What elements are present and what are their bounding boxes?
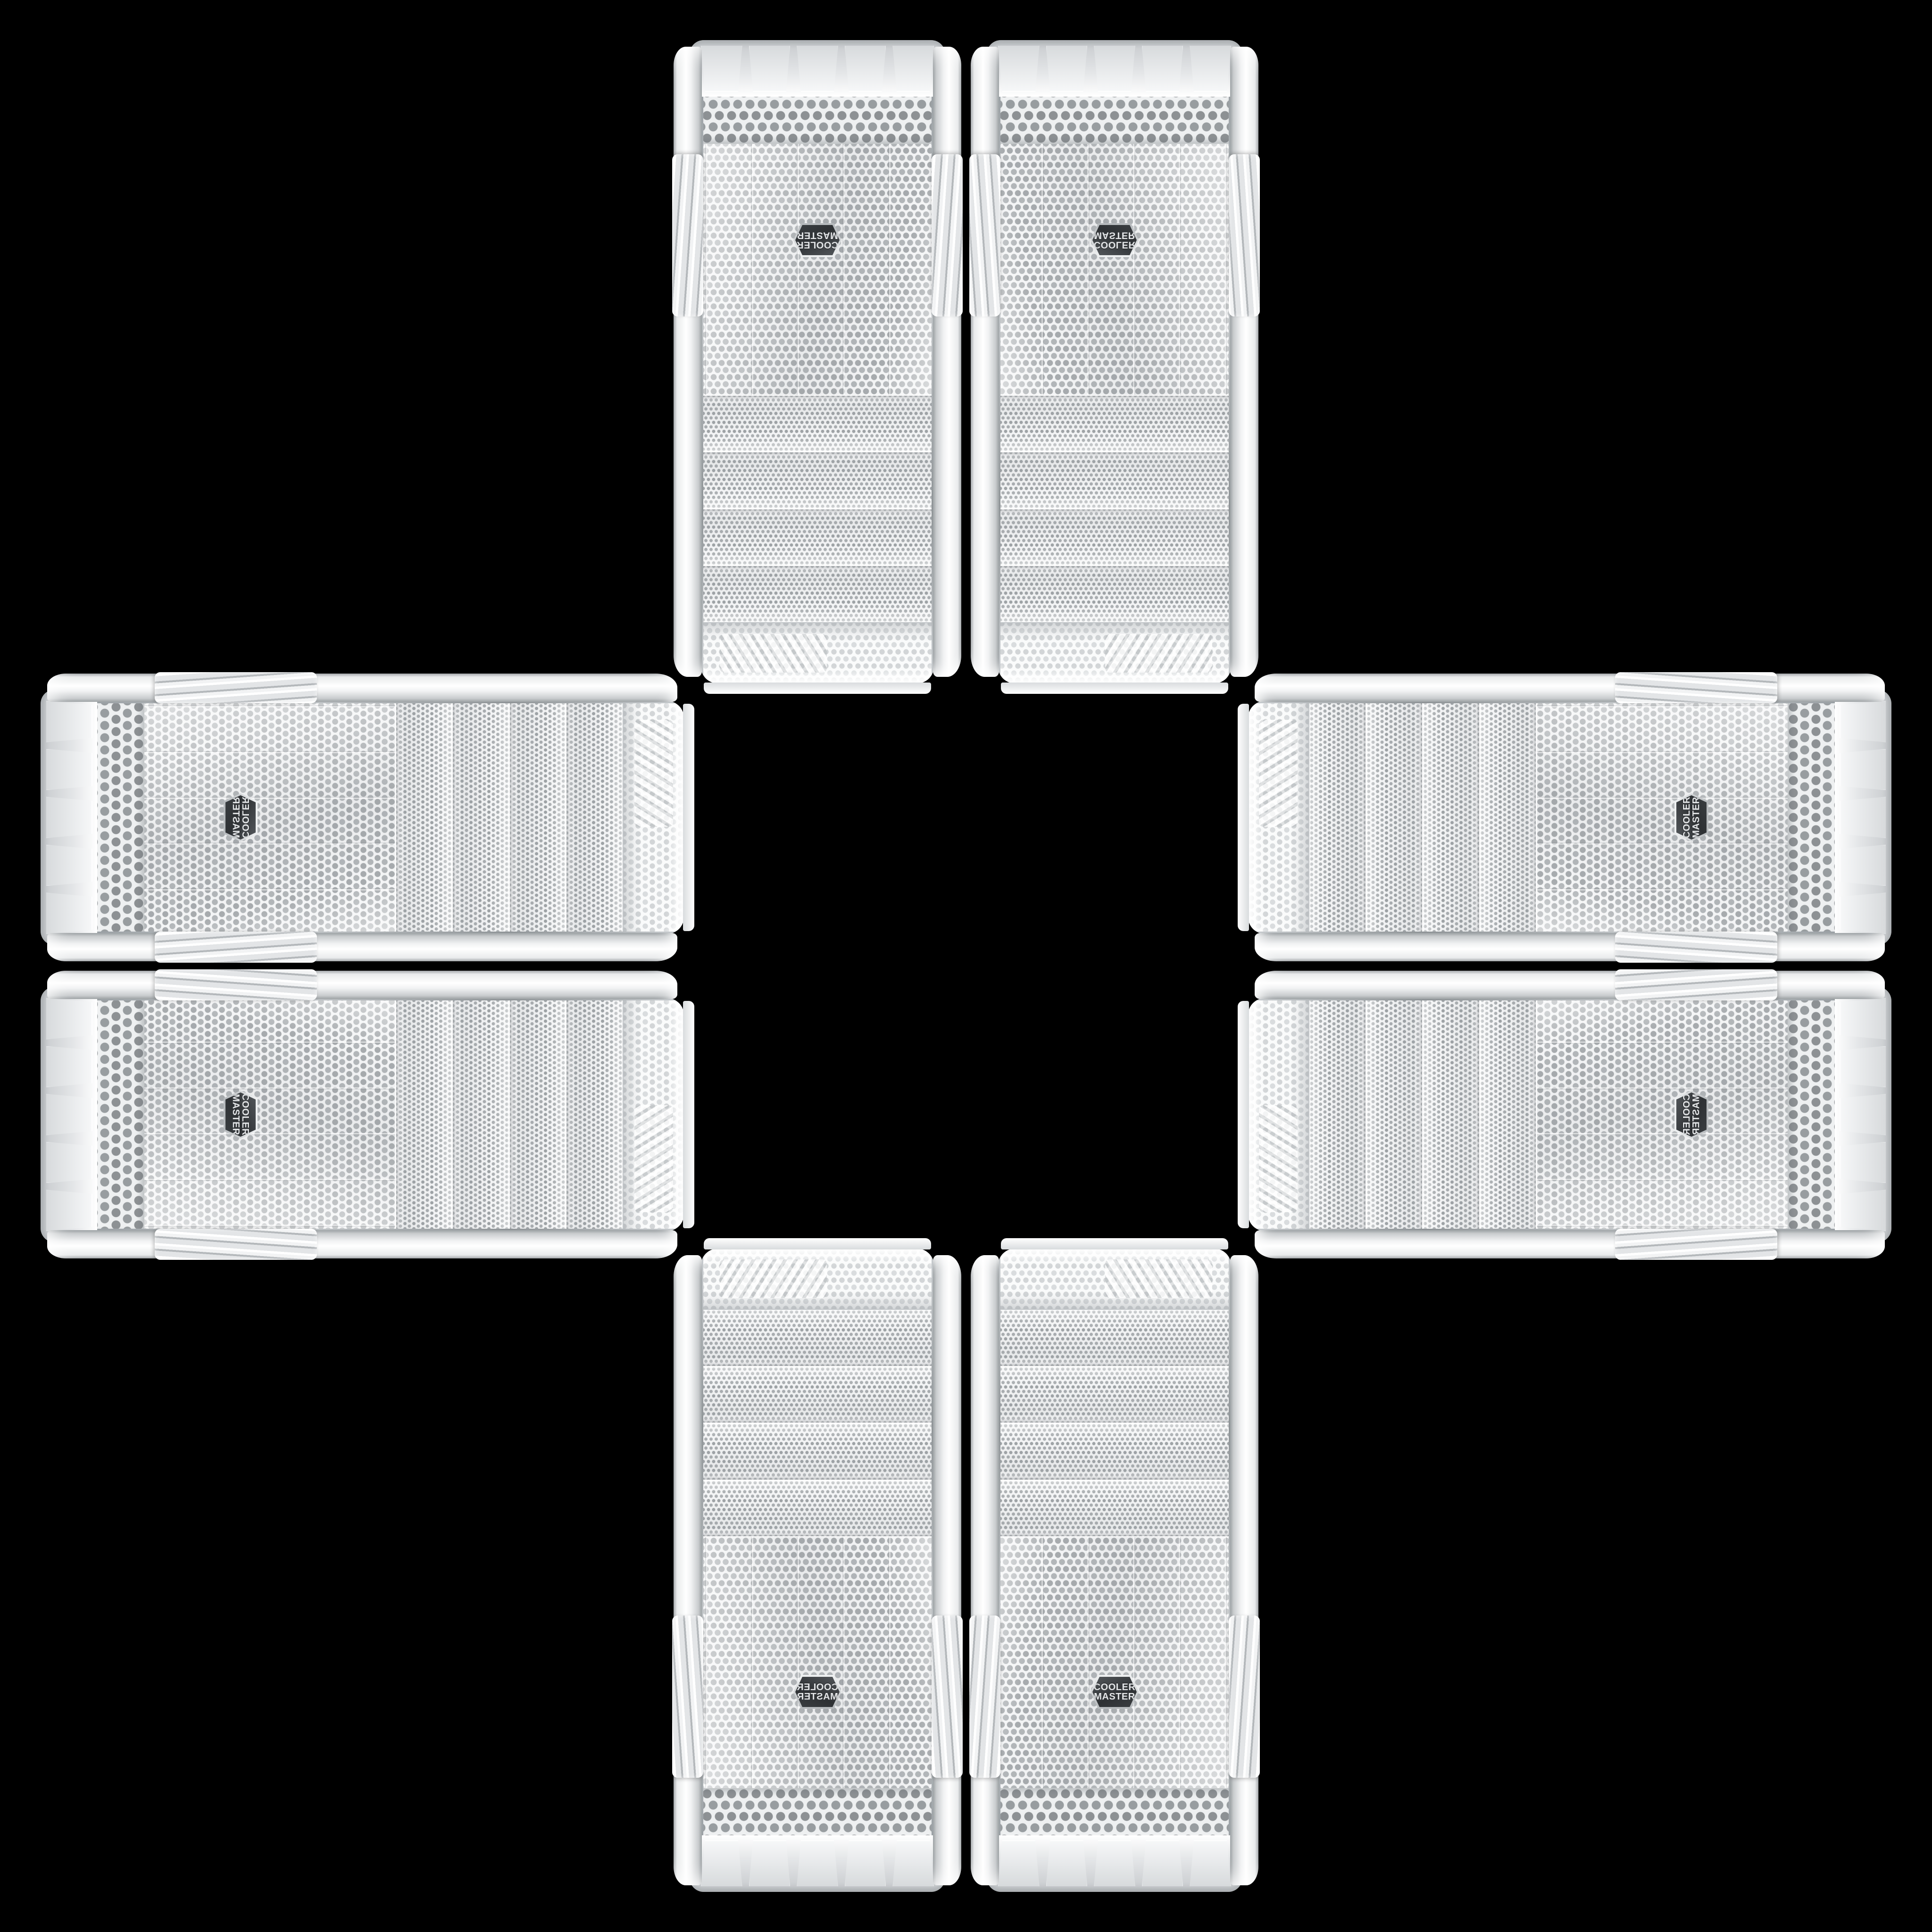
side-rail-right <box>1255 674 1885 702</box>
foot-tab <box>1840 1046 1886 1088</box>
rail-grip-ribs <box>969 154 1000 316</box>
rail-grip-ribs <box>155 932 317 963</box>
side-rail-right <box>47 674 677 702</box>
rail-grip-ribs <box>1615 932 1777 963</box>
cooler-master-badge: COOLER MASTER <box>1091 223 1139 257</box>
foot-tab <box>1190 46 1231 92</box>
panel-slot-right-bottom: COOLER MASTER <box>1236 971 1891 1258</box>
drive-bay-cover <box>998 508 1231 566</box>
badge-text-line2: MASTER <box>1094 1692 1135 1701</box>
cap-grip-ribs <box>1105 634 1212 673</box>
cap-grip-ribs <box>1259 1105 1298 1212</box>
front-mesh-face <box>95 998 684 1231</box>
cooler-master-badge: COOLER MASTER <box>1674 793 1708 841</box>
foot-tab <box>46 1142 92 1183</box>
mesh-seams <box>998 1537 1231 1788</box>
drive-bay-cover <box>998 1424 1231 1481</box>
mesh-crown <box>1248 998 1309 1231</box>
foot-tab <box>892 1840 934 1886</box>
case-front-panel: COOLER MASTER <box>41 971 696 1258</box>
drive-bay-cover <box>701 395 934 452</box>
top-edge-lip <box>1238 1001 1249 1228</box>
drive-bay-cover <box>1366 701 1424 934</box>
badge-text-line2: MASTER <box>1094 231 1135 240</box>
foot-tab <box>1142 1840 1183 1886</box>
foot-tab <box>46 892 92 934</box>
rail-grip-ribs <box>969 1616 1000 1778</box>
cap-grip-ribs <box>634 1105 673 1212</box>
foot-tab <box>46 998 92 1040</box>
drive-bay-cover <box>701 508 934 566</box>
badge-text-line1: COOLER <box>1094 1683 1136 1692</box>
foot-tab <box>1840 797 1886 838</box>
side-rail-right <box>1255 1230 1885 1258</box>
drive-bay-cover <box>395 998 452 1231</box>
mesh-seams <box>1537 998 1788 1231</box>
mesh-grille <box>998 1537 1231 1788</box>
foot-tab <box>797 1840 838 1886</box>
badge-text-line2: MASTER <box>1692 797 1701 838</box>
foot-tab <box>1840 701 1886 742</box>
foot-tab <box>1840 845 1886 886</box>
drive-bay-cover <box>998 395 1231 452</box>
panel-slot-left-top: COOLER MASTER <box>41 674 696 961</box>
panel-slot-bottom-left: COOLER MASTER <box>674 1236 961 1892</box>
drive-bay-cover <box>701 1481 934 1538</box>
side-rail-left <box>971 47 999 677</box>
foot-tab <box>1046 1840 1088 1886</box>
side-rail-right <box>1230 47 1258 677</box>
drive-bay-area <box>395 998 623 1231</box>
foot-tab <box>46 1094 92 1135</box>
case-front-panel: COOLER MASTER <box>1236 971 1891 1258</box>
side-rail-left <box>1255 933 1885 961</box>
foot-tab <box>46 1190 92 1231</box>
mesh-grille <box>1537 701 1788 934</box>
foot-tab <box>1046 46 1088 92</box>
drive-bay-cover <box>998 1310 1231 1367</box>
badge-text-line2: MASTER <box>797 231 838 240</box>
panel-slot-top-left: COOLER MASTER <box>674 40 961 696</box>
drive-bay-cover <box>509 998 566 1231</box>
rail-grip-ribs <box>1615 672 1777 703</box>
mesh-crown <box>1248 701 1309 934</box>
foot-tab <box>749 1840 791 1886</box>
foot-tab <box>1840 1094 1886 1135</box>
drive-bay-cover <box>395 701 452 934</box>
case-front-panel: COOLER MASTER <box>41 674 696 961</box>
side-rail-left <box>1255 971 1885 999</box>
drive-bay-cover <box>1423 701 1480 934</box>
foot-tab <box>892 46 934 92</box>
bottom-cap <box>1835 690 1891 945</box>
badge-text-line1: COOLER <box>1682 1094 1691 1136</box>
rail-grip-ribs <box>672 1616 703 1778</box>
drive-bay-area <box>395 701 623 934</box>
mesh-seams <box>144 998 395 1231</box>
drive-bay-cover <box>998 1367 1231 1424</box>
foot-tab <box>46 701 92 742</box>
cooler-master-badge: COOLER MASTER <box>793 1675 841 1709</box>
cooler-master-badge: COOLER MASTER <box>1674 1091 1708 1139</box>
drive-bay-area <box>701 1310 934 1537</box>
drive-bay-area <box>998 395 1231 622</box>
side-rail-left <box>47 971 677 999</box>
badge-text-line1: COOLER <box>1094 241 1136 250</box>
honeycomb-vent <box>95 701 144 934</box>
foot-tab <box>1094 1840 1135 1886</box>
top-edge-lip <box>704 1238 931 1249</box>
side-rail-right <box>47 1230 677 1258</box>
front-mesh-face <box>1248 701 1837 934</box>
cap-grip-ribs <box>1259 720 1298 827</box>
drive-bay-cover <box>509 701 566 934</box>
foot-tab <box>1142 46 1183 92</box>
honeycomb-vent <box>998 95 1231 144</box>
foot-tab <box>845 46 886 92</box>
foot-tab <box>797 46 838 92</box>
drive-bay-cover <box>1423 998 1480 1231</box>
top-edge-lip <box>1001 683 1228 694</box>
foot-tab <box>46 1046 92 1088</box>
cooler-master-badge: COOLER MASTER <box>224 1091 258 1139</box>
foot-tab <box>701 46 742 92</box>
cooler-master-badge: COOLER MASTER <box>224 793 258 841</box>
foot-tab <box>1840 749 1886 791</box>
drive-bay-cover <box>1480 998 1537 1231</box>
honeycomb-vent <box>95 998 144 1231</box>
mesh-seams <box>144 701 395 934</box>
honeycomb-vent <box>701 95 934 144</box>
mesh-grille <box>701 1537 934 1788</box>
rail-grip-ribs <box>1229 1616 1260 1778</box>
rail-grip-ribs <box>155 1229 317 1260</box>
drive-bay-cover <box>998 1481 1231 1538</box>
badge-face: COOLER MASTER <box>795 225 840 255</box>
side-rail-left <box>933 1255 961 1885</box>
side-rail-right <box>1230 1255 1258 1885</box>
drive-bay-cover <box>1309 701 1366 934</box>
mesh-grille <box>144 701 395 934</box>
foot-tab <box>749 46 791 92</box>
case-front-panel: COOLER MASTER <box>971 40 1258 696</box>
honeycomb-vent <box>998 1788 1231 1837</box>
foot-tab <box>998 46 1040 92</box>
mesh-grille <box>701 144 934 395</box>
drive-bay-area <box>701 395 934 622</box>
mesh-grille <box>144 998 395 1231</box>
front-mesh-face <box>95 701 684 934</box>
rail-grip-ribs <box>1615 969 1777 1000</box>
cap-grip-ribs <box>634 720 673 827</box>
side-rail-left <box>933 47 961 677</box>
foot-tab <box>46 749 92 791</box>
panel-slot-top-right: COOLER MASTER <box>971 40 1258 696</box>
bottom-cap <box>987 1835 1242 1892</box>
badge-face: COOLER MASTER <box>225 795 256 840</box>
top-edge-lip <box>704 683 931 694</box>
badge-face: COOLER MASTER <box>1676 1092 1707 1137</box>
mesh-seams <box>998 144 1231 395</box>
side-rail-left <box>971 1255 999 1885</box>
bottom-cap <box>987 40 1242 97</box>
foot-tab <box>701 1840 742 1886</box>
mesh-crown <box>623 701 684 934</box>
top-edge-lip <box>683 1001 694 1228</box>
front-mesh-face <box>1248 998 1837 1231</box>
foot-tab <box>845 1840 886 1886</box>
badge-text-line1: COOLER <box>241 797 250 839</box>
foot-tab <box>1840 998 1886 1040</box>
mesh-grille <box>1537 998 1788 1231</box>
case-front-panel: COOLER MASTER <box>674 40 961 696</box>
drive-bay-cover <box>701 566 934 623</box>
case-front-panel: COOLER MASTER <box>1236 674 1891 961</box>
bottom-cap <box>1835 987 1891 1242</box>
panel-slot-left-bottom: COOLER MASTER <box>41 971 696 1258</box>
drive-bay-cover <box>1309 998 1366 1231</box>
badge-text-line2: MASTER <box>232 1094 241 1135</box>
drive-bay-cover <box>1480 701 1537 934</box>
rail-grip-ribs <box>155 672 317 703</box>
foot-tab <box>46 797 92 838</box>
drive-bay-cover <box>452 701 509 934</box>
honeycomb-vent <box>701 1788 934 1837</box>
badge-text-line2: MASTER <box>797 1692 838 1701</box>
mesh-crown <box>998 1249 1231 1310</box>
bottom-cap <box>41 690 97 945</box>
mesh-seams <box>701 1537 934 1788</box>
badge-face: COOLER MASTER <box>225 1092 256 1137</box>
foot-tab <box>1840 892 1886 934</box>
front-mesh-face <box>998 1249 1231 1837</box>
mesh-seams <box>1537 701 1788 934</box>
panel-slot-right-top: COOLER MASTER <box>1236 674 1891 961</box>
badge-text-line1: COOLER <box>797 241 839 250</box>
foot-tab <box>998 1840 1040 1886</box>
front-mesh-face <box>701 1249 934 1837</box>
badge-text-line2: MASTER <box>232 797 241 838</box>
honeycomb-vent <box>1788 701 1837 934</box>
mesh-seams <box>701 144 934 395</box>
drive-bay-area <box>1309 701 1537 934</box>
front-mesh-face <box>701 95 934 683</box>
front-mesh-face <box>998 95 1231 683</box>
foot-tab <box>1094 46 1135 92</box>
badge-text-line2: MASTER <box>1692 1094 1701 1135</box>
bottom-cap <box>690 40 945 97</box>
cooler-master-badge: COOLER MASTER <box>793 223 841 257</box>
rail-grip-ribs <box>932 154 963 316</box>
drive-bay-cover <box>701 1310 934 1367</box>
drive-bay-area <box>998 1310 1231 1537</box>
drive-bay-cover <box>701 452 934 509</box>
mesh-crown <box>623 998 684 1231</box>
cap-grip-ribs <box>720 634 827 673</box>
drive-bay-cover <box>998 566 1231 623</box>
drive-bay-cover <box>1366 998 1424 1231</box>
foot-tab <box>1840 1190 1886 1231</box>
rail-grip-ribs <box>155 969 317 1000</box>
collage-canvas: COOLER MASTER <box>0 0 1932 1932</box>
drive-bay-cover <box>566 998 623 1231</box>
case-front-panel: COOLER MASTER <box>971 1236 1258 1892</box>
cap-grip-ribs <box>720 1259 827 1298</box>
rail-grip-ribs <box>932 1616 963 1778</box>
mesh-grille <box>998 144 1231 395</box>
top-edge-lip <box>1238 704 1249 931</box>
foot-tab <box>46 845 92 886</box>
foot-tab <box>1840 1142 1886 1183</box>
mesh-crown <box>701 1249 934 1310</box>
badge-text-line1: COOLER <box>241 1094 250 1136</box>
bottom-cap <box>41 987 97 1242</box>
panel-slot-bottom-right: COOLER MASTER <box>971 1236 1258 1892</box>
cooler-master-badge: COOLER MASTER <box>1091 1675 1139 1709</box>
drive-bay-area <box>1309 998 1537 1231</box>
drive-bay-cover <box>701 1424 934 1481</box>
rail-grip-ribs <box>1615 1229 1777 1260</box>
foot-tab <box>1190 1840 1231 1886</box>
side-rail-right <box>674 1255 702 1885</box>
side-rail-right <box>674 47 702 677</box>
mesh-crown <box>701 622 934 683</box>
honeycomb-vent <box>1788 998 1837 1231</box>
mesh-crown <box>998 622 1231 683</box>
drive-bay-cover <box>998 452 1231 509</box>
bottom-cap <box>690 1835 945 1892</box>
rail-grip-ribs <box>672 154 703 316</box>
drive-bay-cover <box>452 998 509 1231</box>
side-rail-left <box>47 933 677 961</box>
rail-grip-ribs <box>1229 154 1260 316</box>
case-front-panel: COOLER MASTER <box>674 1236 961 1892</box>
badge-face: COOLER MASTER <box>795 1677 840 1707</box>
badge-face: COOLER MASTER <box>1676 795 1707 840</box>
top-edge-lip <box>683 704 694 931</box>
badge-face: COOLER MASTER <box>1092 225 1137 255</box>
badge-text-line1: COOLER <box>797 1683 839 1692</box>
cap-grip-ribs <box>1105 1259 1212 1298</box>
badge-face: COOLER MASTER <box>1092 1677 1137 1707</box>
drive-bay-cover <box>566 701 623 934</box>
top-edge-lip <box>1001 1238 1228 1249</box>
drive-bay-cover <box>701 1367 934 1424</box>
badge-text-line1: COOLER <box>1682 797 1691 839</box>
